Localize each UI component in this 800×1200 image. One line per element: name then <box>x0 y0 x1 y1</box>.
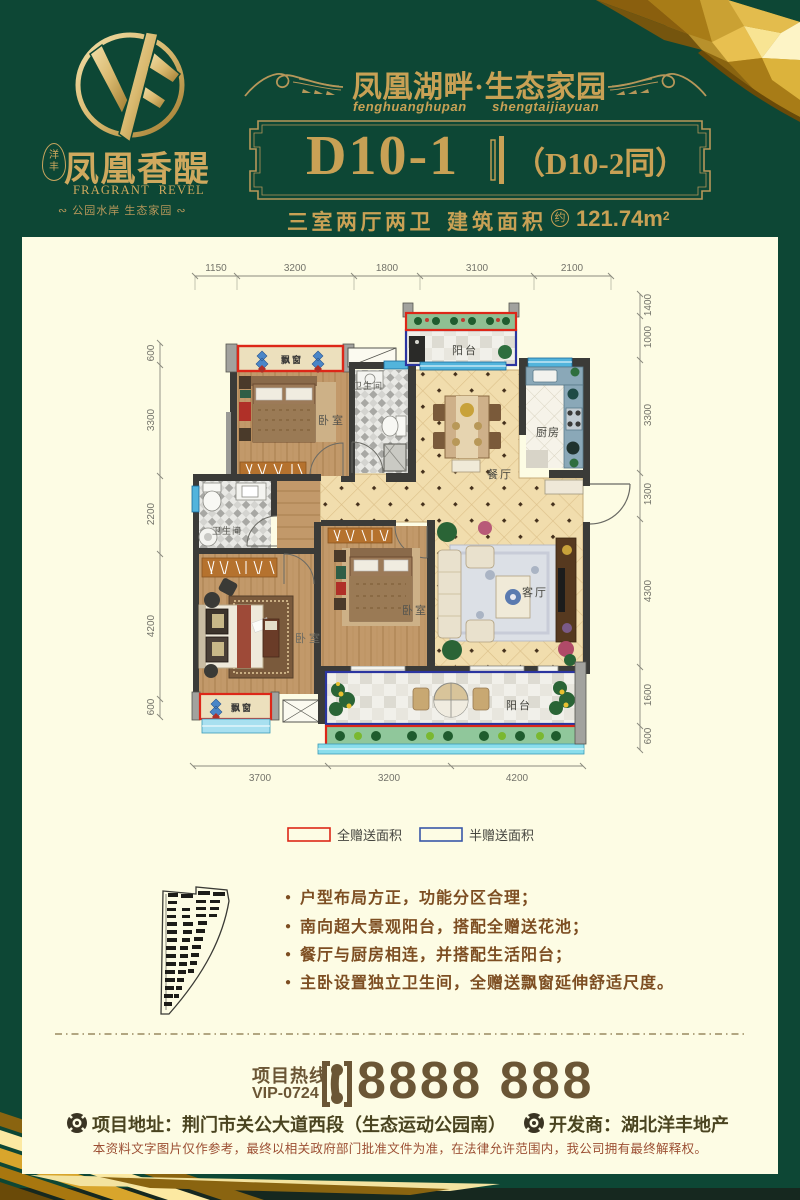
svg-text:3100: 3100 <box>466 263 489 274</box>
svg-text:2100: 2100 <box>561 263 584 274</box>
svg-text:4300: 4300 <box>643 579 654 602</box>
svg-text:飘窗: 飘窗 <box>281 354 303 365</box>
svg-text:1600: 1600 <box>643 683 654 706</box>
svg-text:1150: 1150 <box>205 263 227 274</box>
svg-text:餐厅: 餐厅 <box>487 467 513 481</box>
svg-text:1000: 1000 <box>643 325 654 348</box>
svg-text:1300: 1300 <box>643 482 654 505</box>
svg-text:1800: 1800 <box>376 263 399 274</box>
svg-text:全赠送面积: 全赠送面积 <box>337 828 402 843</box>
svg-text:卧室: 卧室 <box>318 413 346 427</box>
svg-text:阳台: 阳台 <box>452 343 478 357</box>
svg-text:600: 600 <box>146 698 157 715</box>
svg-text:客厅: 客厅 <box>522 585 548 599</box>
svg-text:3300: 3300 <box>643 403 654 426</box>
svg-text:卧室: 卧室 <box>402 603 428 617</box>
svg-text:厨房: 厨房 <box>536 426 560 439</box>
svg-text:3200: 3200 <box>378 773 401 784</box>
svg-text:4200: 4200 <box>506 773 529 784</box>
svg-text:600: 600 <box>643 727 654 744</box>
svg-text:600: 600 <box>146 344 157 361</box>
svg-text:3200: 3200 <box>284 263 307 274</box>
svg-text:卫生间: 卫生间 <box>212 525 242 536</box>
svg-text:1400: 1400 <box>643 293 654 316</box>
svg-text:卧室: 卧室 <box>295 631 323 645</box>
svg-text:3300: 3300 <box>146 408 157 431</box>
svg-text:3700: 3700 <box>249 773 272 784</box>
svg-text:卫生间: 卫生间 <box>353 380 383 391</box>
svg-text:半赠送面积: 半赠送面积 <box>469 828 534 843</box>
svg-text:飘窗: 飘窗 <box>231 702 253 713</box>
svg-text:2200: 2200 <box>146 502 157 525</box>
svg-text:阳台: 阳台 <box>506 698 532 712</box>
svg-text:4200: 4200 <box>146 614 157 637</box>
